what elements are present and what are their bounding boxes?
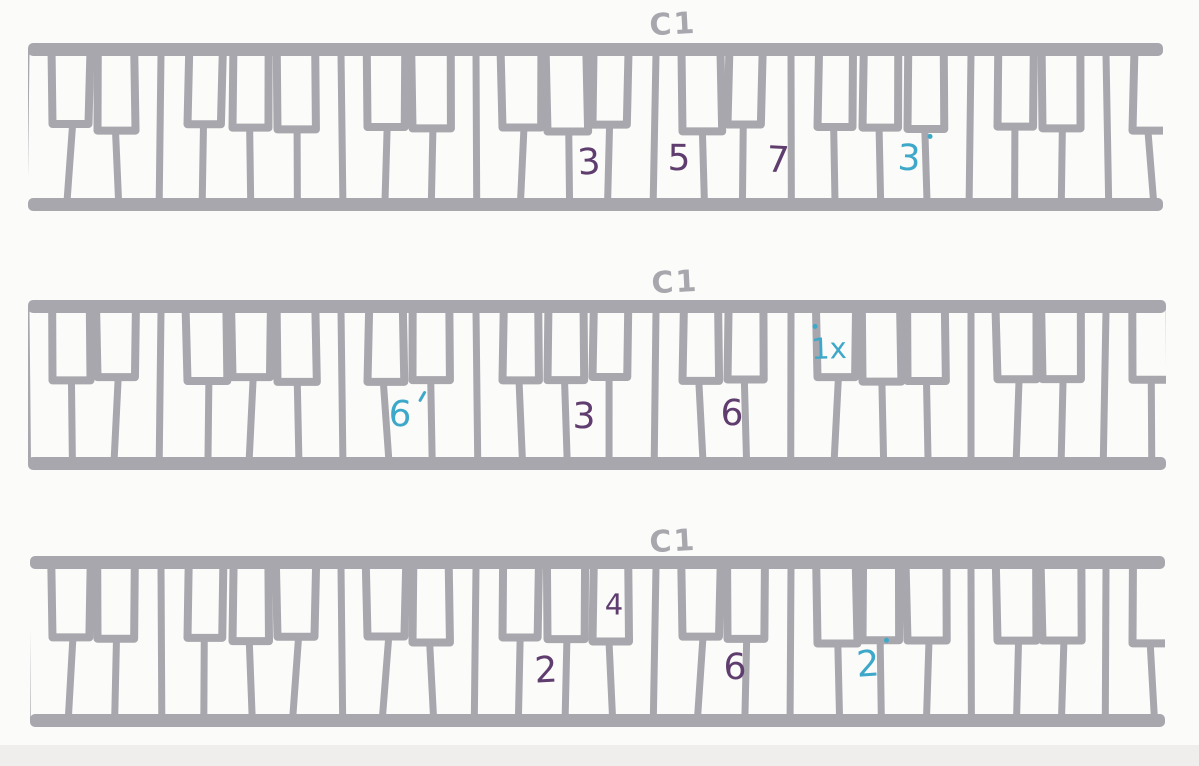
dot-mark (812, 324, 817, 329)
black-key (503, 309, 539, 380)
black-key (728, 309, 764, 380)
annotation-text: 3 (572, 399, 595, 435)
white-key-separator (1148, 134, 1153, 201)
black-key (1133, 52, 1164, 131)
note-number-annotation: 7 (766, 142, 791, 179)
white-key-separator (161, 567, 162, 717)
dot-mark (884, 638, 889, 643)
annotation-text: 6 (387, 396, 412, 433)
black-key (1042, 52, 1081, 128)
white-key-separator (1061, 131, 1062, 201)
white-key-separator (1150, 646, 1154, 717)
bottom-rail (30, 714, 1165, 727)
top-rail (28, 300, 1166, 313)
black-key (97, 565, 135, 639)
white-key-separator (430, 645, 434, 717)
white-key-separator (71, 383, 72, 460)
keyboard-drawing (28, 300, 1166, 470)
keyboard-row: C1 (0, 0, 1199, 766)
white-key-separator (202, 127, 203, 201)
black-key (52, 52, 91, 124)
octave-label: C1 (651, 267, 699, 299)
black-key (681, 565, 720, 637)
white-key-separator (654, 311, 656, 460)
black-key (233, 565, 269, 641)
octave-label: C1 (649, 9, 697, 41)
keyboard-row: C1 (0, 0, 1199, 766)
black-key (188, 565, 224, 638)
black-key (277, 52, 316, 129)
white-key-separator (744, 383, 746, 460)
white-key-separator (249, 644, 252, 717)
black-key (906, 565, 947, 641)
white-key-separator (1062, 644, 1064, 717)
white-key-separator (476, 311, 478, 460)
black-key (98, 52, 136, 131)
black-key (231, 309, 271, 377)
black-key (366, 565, 406, 636)
annotation-text: 5 (667, 141, 690, 177)
white-key-separator (698, 640, 703, 717)
white-key-separator (702, 134, 704, 201)
scanned-notebook-page: C1 3573 C1 6361x C1 4262 (0, 0, 1199, 766)
white-key-separator (385, 130, 387, 201)
black-key (996, 309, 1037, 379)
white-key-separator (341, 567, 343, 717)
keyboard-drawing (30, 556, 1165, 727)
white-key-separator (67, 127, 72, 201)
black-key (548, 309, 585, 380)
black-key (277, 309, 317, 382)
white-key-separator (341, 311, 343, 460)
black-key (907, 309, 946, 381)
white-key-separator (653, 567, 656, 717)
annotation-text: 1x (811, 334, 847, 364)
white-key-separator (609, 645, 612, 717)
white-key-separator (518, 640, 520, 717)
white-key-separator (68, 640, 72, 717)
top-rail (28, 43, 1163, 56)
black-key (1041, 565, 1082, 641)
white-key-separator (1061, 382, 1063, 460)
white-key-separator (519, 383, 522, 460)
white-key-separator (382, 639, 388, 717)
keyboard-drawing (28, 43, 1163, 211)
white-key-separator (1106, 54, 1109, 201)
white-key-separator (882, 385, 884, 460)
black-key (276, 565, 316, 637)
annotation-text: 6 (723, 650, 747, 686)
black-key (546, 52, 588, 132)
black-key (503, 565, 539, 637)
annotation-text: 3 (576, 144, 601, 182)
page-bottom-edge (0, 745, 1199, 766)
white-key-separator (249, 380, 253, 460)
bottom-rail (28, 457, 1166, 470)
white-key-separator (653, 54, 656, 201)
white-key-separator (116, 134, 119, 201)
note-number-annotation: 6 (720, 396, 743, 432)
bottom-rail (28, 198, 1163, 211)
note-number-annotation: 2 (855, 646, 880, 683)
white-key-separator (834, 380, 838, 460)
black-key (96, 309, 136, 377)
white-key-separator (834, 130, 835, 201)
black-key (727, 565, 765, 639)
white-key-separator (1017, 644, 1019, 717)
note-number-annotation: 3 (576, 144, 601, 182)
black-key (186, 309, 228, 381)
white-key-separator (431, 383, 432, 460)
white-key-separator (565, 383, 568, 460)
black-key (52, 309, 90, 380)
white-key-separator (476, 54, 477, 201)
annotation-text: 3 (897, 141, 921, 178)
note-number-annotation: 2 (534, 652, 559, 689)
top-rail (30, 556, 1165, 569)
white-key-separator (250, 131, 251, 201)
white-key-separator (431, 131, 432, 201)
black-key (501, 52, 542, 128)
white-key-separator (297, 385, 299, 460)
note-number-annotation: 3 (572, 399, 595, 435)
black-key (1132, 309, 1166, 380)
white-key-separator (159, 54, 161, 201)
black-key (862, 309, 902, 382)
white-key-separator (969, 54, 971, 201)
annotation-text: 6 (720, 396, 743, 432)
black-key (682, 52, 723, 131)
black-key (411, 52, 451, 128)
black-key (728, 52, 763, 124)
black-key (547, 565, 585, 639)
tick-mark (418, 390, 427, 402)
white-key-separator (159, 311, 161, 460)
black-key (413, 565, 450, 642)
keyboard-row: C1 (0, 0, 1199, 766)
white-key-separator (521, 131, 524, 201)
annotation-text: 4 (605, 590, 624, 619)
white-key-separator (293, 640, 299, 717)
black-key (51, 565, 90, 637)
black-key (683, 309, 720, 381)
white-key-separator (608, 128, 610, 201)
white-key-separator (879, 131, 880, 201)
annotation-text: 2 (534, 652, 559, 689)
annotation-text: 7 (766, 142, 791, 179)
black-key (1133, 565, 1166, 643)
black-key (368, 309, 405, 382)
black-key (593, 52, 629, 125)
white-key-separator (742, 127, 743, 201)
black-key (233, 52, 269, 128)
black-key (1041, 309, 1081, 379)
white-key-separator (1105, 567, 1106, 717)
note-number-annotation: 6 (723, 650, 747, 686)
white-key-separator (1103, 311, 1106, 460)
black-key (998, 52, 1034, 127)
black-key (593, 309, 629, 377)
black-key (818, 52, 853, 127)
octave-label: C1 (649, 526, 697, 558)
note-number-annotation: 6 (387, 396, 412, 433)
black-key (413, 309, 450, 380)
white-key-separator (1016, 382, 1019, 460)
note-number-annotation: 3 (897, 141, 921, 178)
white-key-separator (838, 647, 840, 717)
white-key-separator (927, 384, 928, 460)
black-key (367, 52, 405, 127)
note-number-annotation: 4 (605, 590, 624, 619)
white-key-separator (474, 567, 476, 717)
white-key-separator (341, 54, 343, 201)
black-key (908, 52, 945, 129)
white-key-separator (208, 384, 209, 460)
white-key-separator (114, 380, 118, 460)
black-key (863, 565, 900, 640)
note-number-annotation: 1x (811, 334, 847, 364)
dot-mark (927, 134, 932, 139)
white-key-separator (927, 644, 929, 717)
white-key-separator (569, 135, 570, 201)
white-key-separator (925, 132, 927, 201)
black-key (863, 52, 899, 128)
white-key-separator (699, 384, 703, 460)
black-key (996, 565, 1037, 641)
white-key-separator (565, 642, 567, 717)
black-key (188, 52, 223, 124)
note-number-annotation: 5 (667, 141, 690, 177)
white-key-separator (790, 567, 791, 717)
black-key (816, 565, 857, 644)
white-key-separator (115, 642, 117, 717)
annotation-text: 2 (855, 646, 880, 683)
